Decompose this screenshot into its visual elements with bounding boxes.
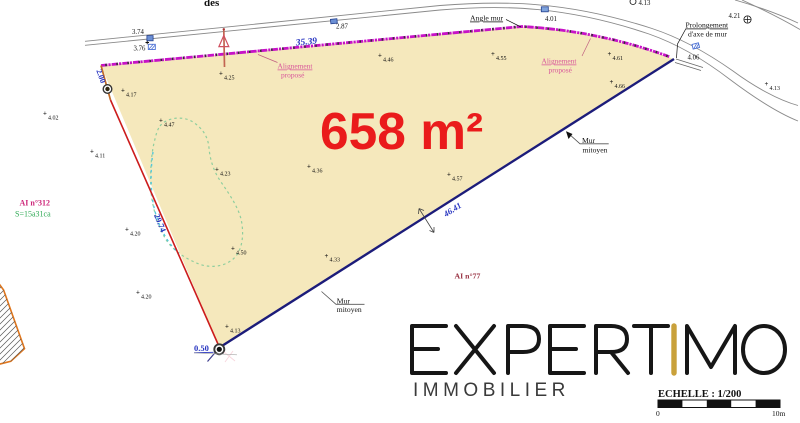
- svg-text:4.25: 4.25: [224, 76, 235, 82]
- svg-text:proposé: proposé: [281, 71, 305, 80]
- svg-text:+: +: [43, 111, 47, 118]
- svg-text:+: +: [608, 51, 612, 58]
- svg-text:4.13: 4.13: [770, 86, 781, 92]
- svg-text:4.36: 4.36: [312, 169, 323, 175]
- svg-text:2.87: 2.87: [336, 24, 348, 31]
- svg-text:0: 0: [656, 409, 660, 418]
- svg-text:35.39: 35.39: [294, 37, 317, 49]
- svg-text:IMMOBILIER: IMMOBILIER: [413, 380, 570, 401]
- svg-text:AI n°312: AI n°312: [20, 199, 51, 208]
- svg-text:+: +: [136, 290, 140, 297]
- svg-text:4.13: 4.13: [639, 0, 651, 7]
- svg-text:+: +: [307, 164, 311, 171]
- svg-text:des: des: [204, 0, 220, 9]
- svg-text:proposé: proposé: [549, 66, 573, 75]
- svg-text:d'axe de mur: d'axe de mur: [688, 30, 727, 39]
- svg-text:S=15a31ca: S=15a31ca: [15, 210, 51, 219]
- svg-text:4.61: 4.61: [613, 56, 624, 62]
- svg-text:4.20: 4.20: [130, 232, 141, 238]
- svg-text:+: +: [447, 172, 451, 179]
- svg-text:AI n°77: AI n°77: [455, 272, 481, 281]
- svg-text:4.13: 4.13: [230, 329, 241, 335]
- svg-text:+: +: [90, 149, 94, 156]
- svg-text:+: +: [610, 79, 614, 86]
- svg-text:4.33: 4.33: [330, 258, 341, 264]
- svg-text:4.66: 4.66: [615, 84, 626, 90]
- svg-text:4.57: 4.57: [452, 177, 463, 183]
- svg-text:+: +: [215, 167, 219, 174]
- svg-text:+: +: [159, 118, 163, 125]
- svg-text:3.74: 3.74: [132, 29, 144, 36]
- svg-text:+: +: [121, 88, 125, 95]
- svg-text:4.20: 4.20: [141, 295, 152, 301]
- svg-text:mitoyen: mitoyen: [337, 305, 362, 314]
- svg-text:4.55: 4.55: [496, 56, 507, 62]
- svg-text:+: +: [325, 253, 329, 260]
- svg-text:Alignement: Alignement: [278, 62, 314, 71]
- svg-text:+: +: [219, 71, 223, 78]
- svg-text:4.47: 4.47: [164, 123, 175, 129]
- svg-text:+: +: [231, 246, 235, 253]
- svg-text:4.01: 4.01: [545, 16, 557, 23]
- svg-text:4.23: 4.23: [220, 172, 231, 178]
- svg-text:4.21: 4.21: [729, 13, 741, 20]
- svg-text:4.11: 4.11: [95, 154, 105, 160]
- svg-text:4.06: 4.06: [688, 55, 700, 62]
- svg-text:+: +: [491, 51, 495, 58]
- svg-text:4.02: 4.02: [48, 116, 59, 122]
- svg-text:+: +: [765, 81, 769, 88]
- svg-text:ECHELLE : 1/200: ECHELLE : 1/200: [658, 389, 741, 400]
- svg-text:Prolongement: Prolongement: [686, 21, 729, 30]
- svg-text:658 m²: 658 m²: [320, 102, 483, 160]
- svg-text:10m: 10m: [772, 409, 786, 418]
- svg-text:4.46: 4.46: [383, 58, 394, 64]
- svg-text:Alignement: Alignement: [542, 57, 578, 66]
- svg-text:+: +: [378, 53, 382, 60]
- svg-text:0.50: 0.50: [194, 343, 209, 353]
- svg-text:4.17: 4.17: [126, 93, 137, 99]
- svg-text:mitoyen: mitoyen: [583, 145, 608, 154]
- svg-text:+: +: [125, 227, 129, 234]
- svg-text:3.76: 3.76: [134, 46, 146, 53]
- svg-text:4.50: 4.50: [236, 251, 247, 257]
- svg-text:+: +: [225, 324, 229, 331]
- svg-text:Angle mur: Angle mur: [470, 14, 504, 23]
